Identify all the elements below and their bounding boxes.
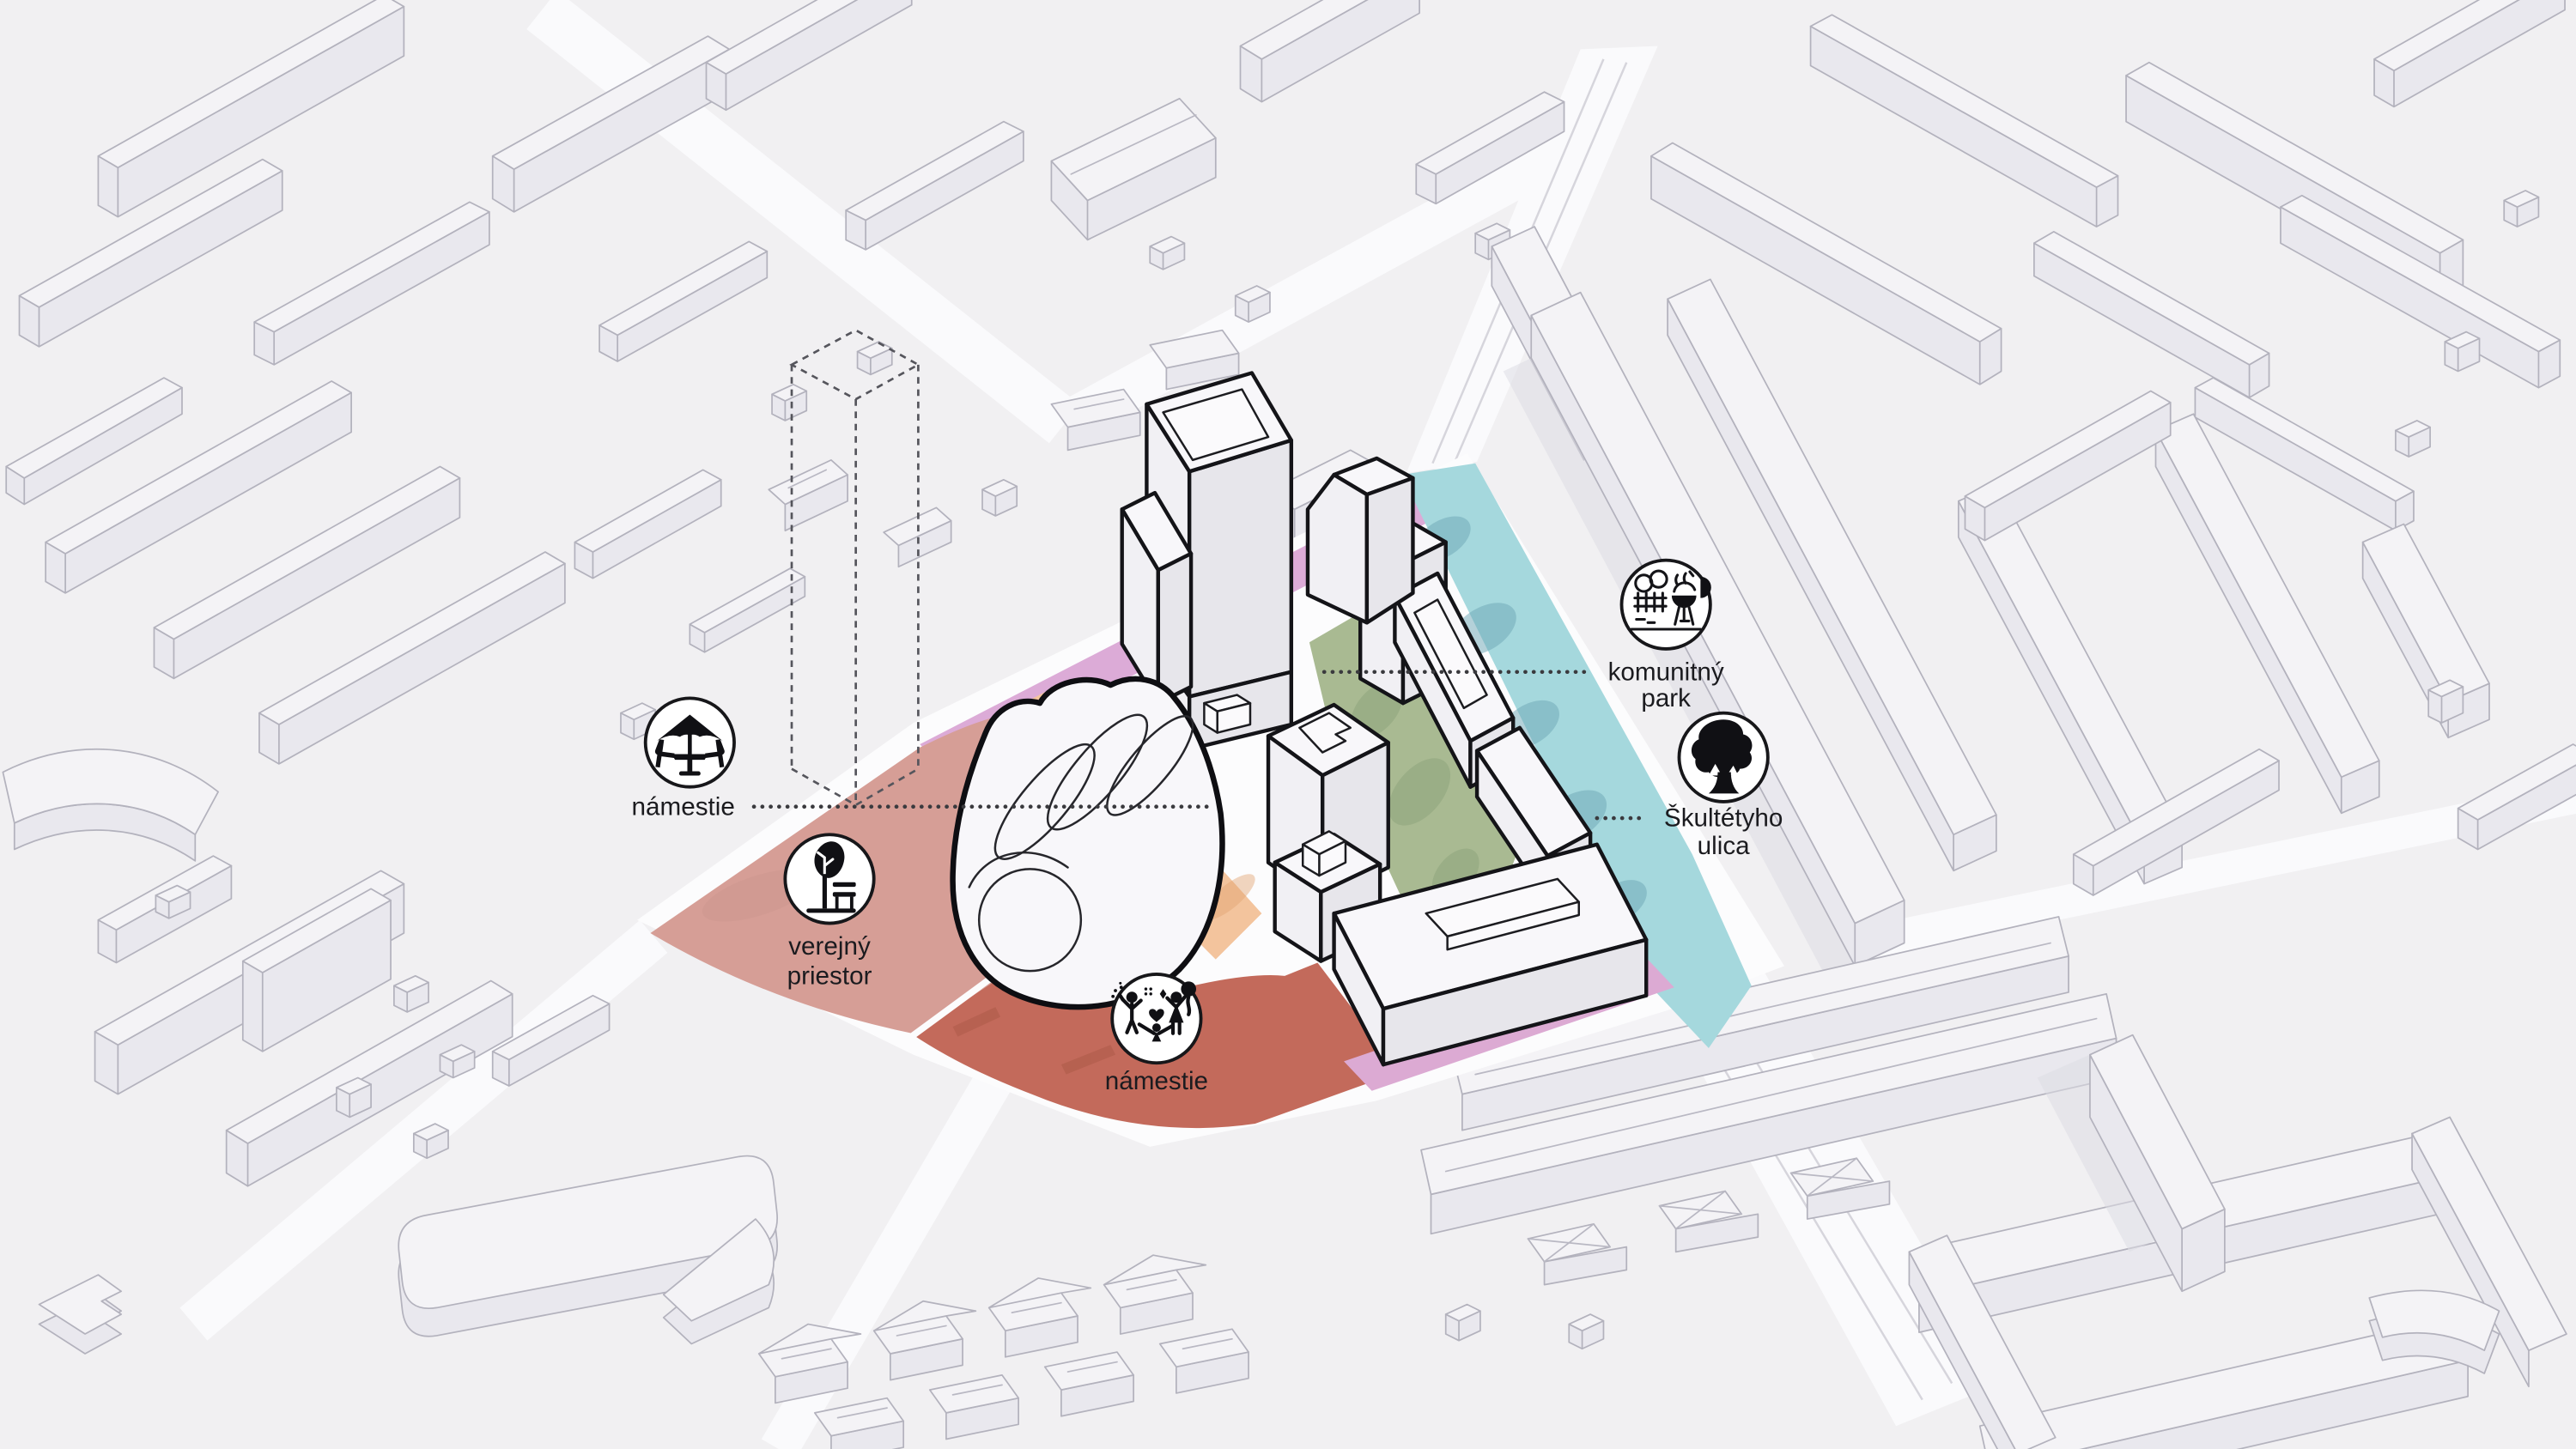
parasol-table-icon xyxy=(646,698,734,786)
label-namestie-south: námestie xyxy=(1105,1067,1208,1095)
street-tree-icon xyxy=(1679,713,1767,802)
label-park: park xyxy=(1641,684,1691,712)
annotation-namestie-south: námestie xyxy=(1105,974,1208,1095)
culture-blob-building xyxy=(953,679,1223,1007)
tree-bench-icon xyxy=(785,834,873,923)
diagram-canvas: námestie verejný priestor xyxy=(0,0,2576,1449)
label-priestor: priestor xyxy=(787,961,872,990)
site-plan-diagram: námestie verejný priestor xyxy=(0,0,2576,1449)
label-ulica: ulica xyxy=(1698,832,1750,860)
label-komunitny: komunitný xyxy=(1608,658,1724,686)
garden-grill-icon xyxy=(1622,561,1711,649)
label-skultetyho: Škultétyho xyxy=(1664,803,1783,833)
celebration-icon xyxy=(1111,974,1200,1063)
label-verejny: verejný xyxy=(788,932,871,961)
label-namestie-west: námestie xyxy=(632,792,735,821)
annotation-verejny-priestor: verejný priestor xyxy=(785,834,873,990)
